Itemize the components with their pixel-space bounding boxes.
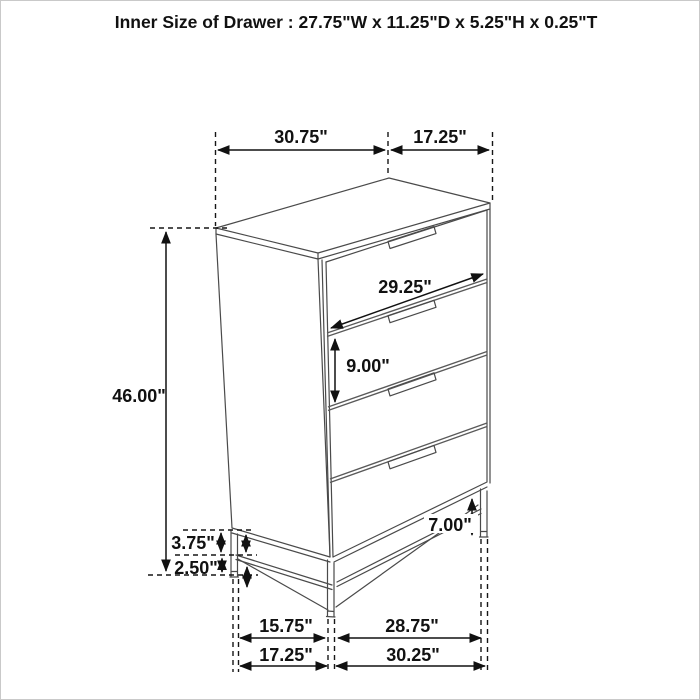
label-base-inner-width: 15.75" [259, 616, 313, 636]
image-border [1, 1, 700, 700]
label-frame-upper-gap: 3.75" [171, 533, 215, 553]
label-base-outer-depth: 30.25" [386, 645, 440, 665]
chest-line-drawing: Inner Size of Drawer : 27.75"W x 11.25"D… [0, 0, 700, 700]
label-frame-lower-gap: 2.50" [174, 558, 218, 578]
label-base-inner-depth: 28.75" [385, 616, 439, 636]
label-base-outer-width: 17.25" [259, 645, 313, 665]
label-top-depth: 17.25" [413, 127, 467, 147]
label-drawer-width: 29.25" [378, 277, 432, 297]
label-top-width: 30.75" [274, 127, 328, 147]
drawer-handles [388, 227, 436, 469]
diagram-title: Inner Size of Drawer : 27.75"W x 11.25"D… [115, 12, 598, 32]
label-leg-height: 7.00" [428, 515, 472, 535]
label-drawer-pitch: 9.00" [346, 356, 390, 376]
dimension-diagram: Inner Size of Drawer : 27.75"W x 11.25"D… [0, 0, 700, 700]
base-frame [230, 487, 488, 617]
label-overall-height: 46.00" [112, 386, 166, 406]
extension-lines [148, 132, 493, 672]
